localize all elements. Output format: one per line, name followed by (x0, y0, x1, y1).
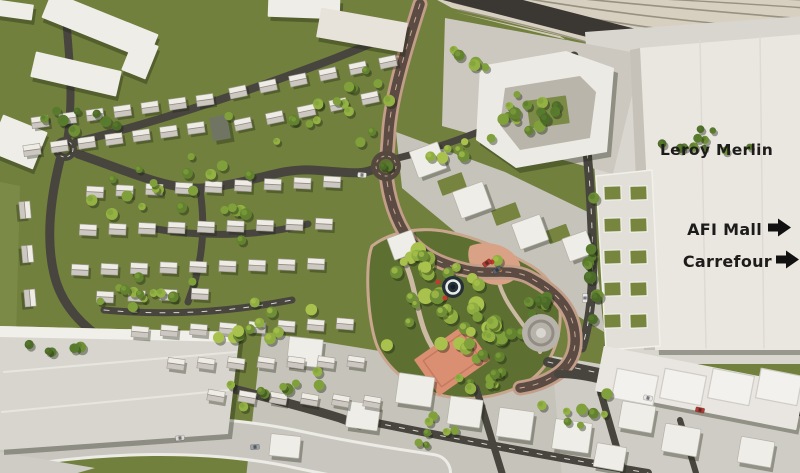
house (323, 176, 343, 191)
apartment-block (617, 401, 659, 438)
car (357, 172, 366, 178)
house (109, 223, 129, 238)
house (256, 220, 276, 235)
car (250, 444, 259, 450)
apartment-block (495, 407, 537, 445)
house (286, 219, 306, 234)
house (264, 179, 284, 194)
apartment-block (736, 436, 778, 472)
label-afi-mall: AFI Mall (687, 220, 762, 239)
house (160, 325, 181, 341)
apartment-block (446, 396, 486, 433)
car (175, 435, 185, 441)
house (196, 357, 217, 374)
house (189, 261, 209, 276)
house (227, 220, 247, 235)
label-carrefour: Carrefour (683, 252, 772, 271)
aerial-masterplan-image: Leroy Merlin AFI Mall Carrefour (0, 0, 800, 473)
house (346, 355, 367, 372)
house (219, 260, 239, 275)
plaza-circle-center (536, 328, 546, 338)
playground-equipment (443, 296, 448, 301)
house (286, 356, 307, 373)
house (205, 181, 225, 196)
house (293, 177, 313, 192)
apartment-block (660, 423, 704, 461)
house (315, 218, 335, 233)
house (71, 264, 91, 279)
house (226, 357, 247, 374)
house (256, 356, 277, 373)
warehouse-roof (0, 326, 244, 455)
masterplan-svg: Leroy Merlin AFI Mall Carrefour (0, 0, 800, 473)
house (166, 357, 187, 374)
apartment-block (592, 443, 629, 473)
label-leroy-merlin: Leroy Merlin (660, 141, 773, 159)
house (189, 323, 210, 339)
house (131, 326, 152, 342)
house (278, 259, 298, 274)
house (138, 223, 158, 238)
apartment-block (269, 433, 305, 462)
splash-pool-center (451, 285, 456, 290)
house (168, 222, 188, 237)
house (101, 263, 121, 278)
house (191, 288, 211, 303)
scene-layers (0, 0, 800, 473)
apartment-block (395, 373, 438, 412)
house (307, 258, 327, 273)
house (307, 319, 328, 335)
leroy-merlin-roof (640, 34, 800, 355)
playground-equipment (436, 280, 441, 285)
house (197, 221, 217, 236)
house (79, 224, 99, 239)
house (160, 262, 180, 277)
house (248, 260, 268, 275)
car (582, 293, 587, 302)
house (336, 318, 357, 334)
